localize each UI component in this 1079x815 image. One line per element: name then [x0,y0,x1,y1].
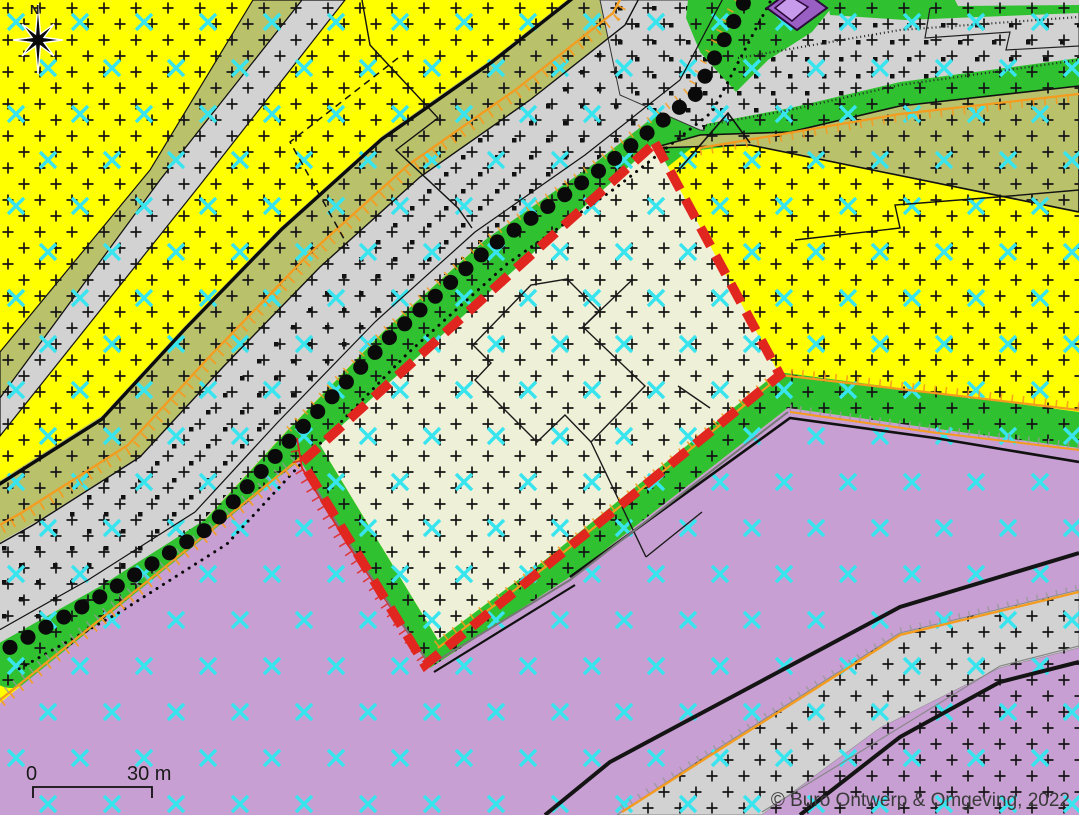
scale-start-label: 0 [26,763,37,785]
scale-end-label: 30 m [127,763,171,785]
map: N 0 30 m © Buro Ontwerp & Omgeving, 2022 [0,0,1079,815]
north-label: N [30,2,39,17]
zoning-map: N 0 30 m © Buro Ontwerp & Omgeving, 2022 [0,0,1079,815]
copyright-text: © Buro Ontwerp & Omgeving, 2022 [771,790,1070,811]
